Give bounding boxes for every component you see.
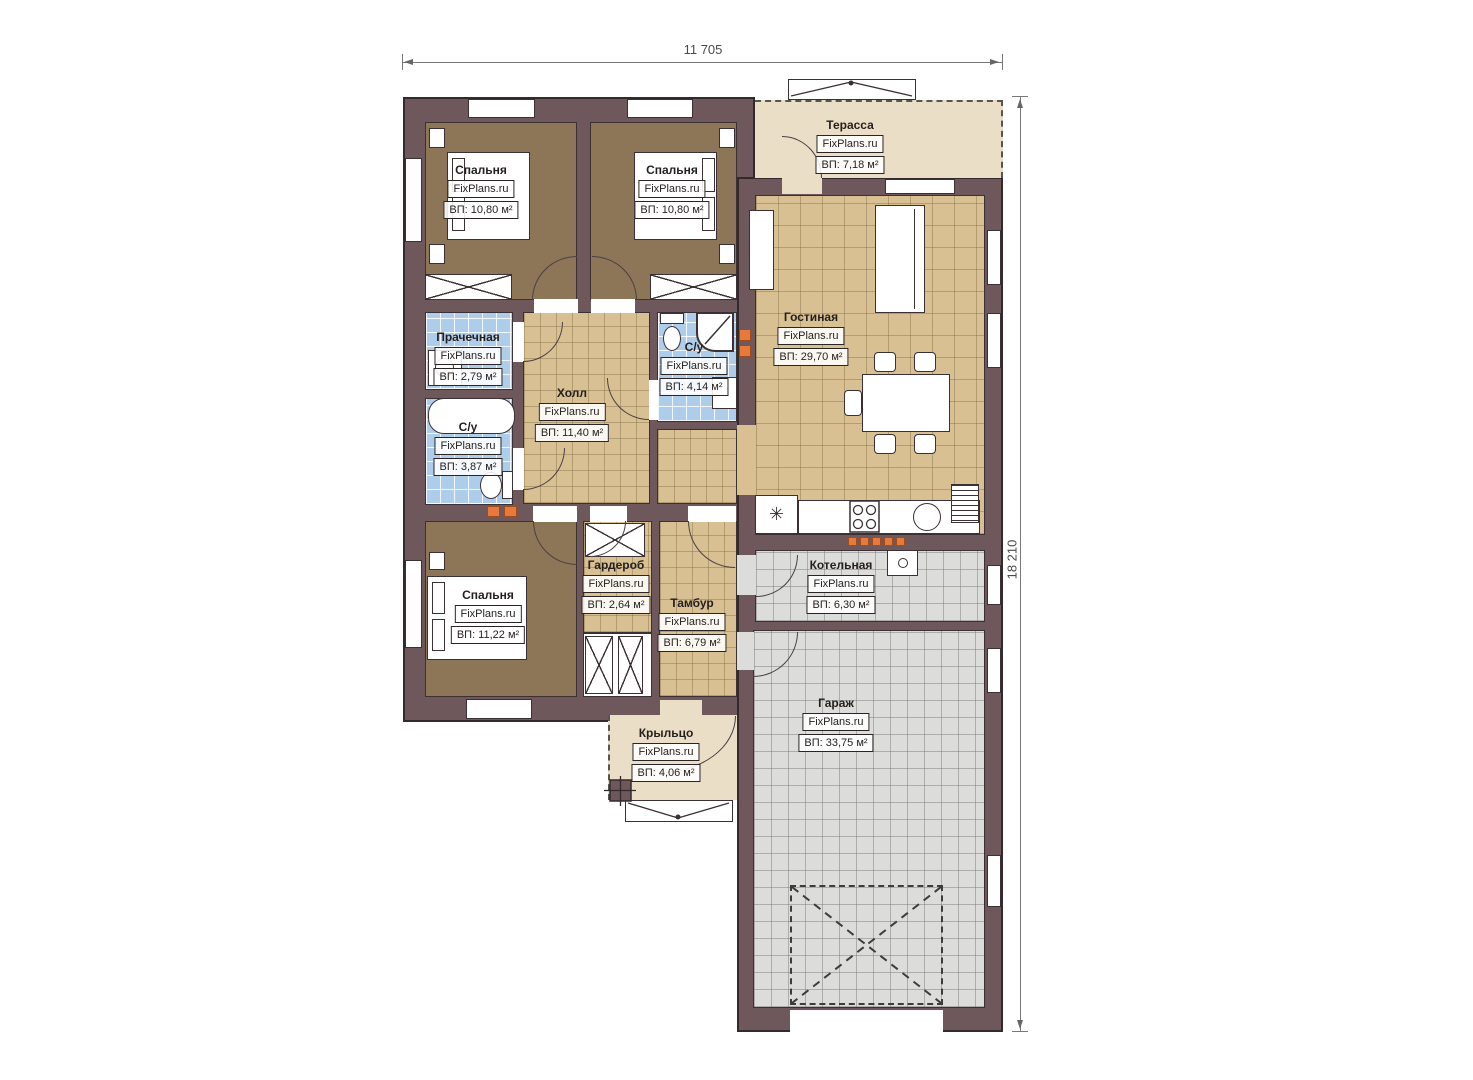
dimension-width-label: 11 705 xyxy=(663,42,743,57)
chair xyxy=(874,434,896,454)
window-living-right-2 xyxy=(987,313,1001,368)
closet xyxy=(650,274,737,300)
room-name: Гостиная xyxy=(784,310,838,324)
kitchen-sink xyxy=(913,503,941,531)
brand-watermark: FixPlans.ru xyxy=(660,357,727,375)
chair xyxy=(874,352,896,372)
window-bedroom-3-bottom xyxy=(466,699,532,719)
floor-hall-lower xyxy=(657,429,737,504)
window-garage-right-1 xyxy=(987,648,1001,693)
room-label-bathroom-1: С/у FixPlans.ru ВП: 4,14 м² xyxy=(659,340,728,396)
passage-hall-living xyxy=(737,425,756,495)
room-name: Прачечная xyxy=(436,330,500,344)
room-label-laundry: Прачечная FixPlans.ru ВП: 2,79 м² xyxy=(433,330,502,386)
room-label-porch: Крыльцо FixPlans.ru ВП: 4,06 м² xyxy=(631,726,700,782)
brand-watermark: FixPlans.ru xyxy=(658,613,725,631)
steps-lines-icon xyxy=(626,801,731,820)
garage-gate-opening xyxy=(790,1010,943,1032)
toilet xyxy=(480,472,502,499)
brand-watermark: FixPlans.ru xyxy=(538,403,605,421)
room-name: С/у xyxy=(459,420,478,434)
door-opening-bedroom-1 xyxy=(534,299,578,313)
room-name: Тамбур xyxy=(670,596,714,610)
dimension-line-right xyxy=(1020,97,1021,1032)
window-bedroom-1-top xyxy=(468,99,535,118)
nightstand xyxy=(429,244,445,264)
terrace-steps xyxy=(788,79,916,100)
room-name: Гардероб xyxy=(588,558,645,572)
window-living-right-1 xyxy=(987,230,1001,285)
room-area: ВП: 6,30 м² xyxy=(806,596,875,614)
room-label-hall: Холл FixPlans.ru ВП: 11,40 м² xyxy=(535,386,609,442)
door-opening-bedroom-2 xyxy=(591,299,635,313)
pillow xyxy=(432,619,445,651)
room-label-vestibule: Тамбур FixPlans.ru ВП: 6,79 м² xyxy=(657,596,726,652)
window-garage-right-2 xyxy=(987,855,1001,907)
window-bedroom-1-left xyxy=(405,158,422,242)
room-label-bedroom-1: Спальня FixPlans.ru ВП: 10,80 м² xyxy=(443,163,518,219)
window-boiler-right xyxy=(987,565,1001,605)
boiler-sink-bowl xyxy=(898,558,908,568)
dimension-height-label: 18 210 xyxy=(1005,530,1020,590)
brand-watermark: FixPlans.ru xyxy=(638,180,705,198)
room-name: Холл xyxy=(557,386,587,400)
room-area: ВП: 2,64 м² xyxy=(581,596,650,614)
room-area: ВП: 10,80 м² xyxy=(443,201,518,219)
tv-cabinet xyxy=(749,210,774,290)
door-opening-garage xyxy=(737,632,754,670)
room-area: ВП: 29,70 м² xyxy=(773,348,848,366)
brand-watermark: FixPlans.ru xyxy=(582,575,649,593)
room-area: ВП: 2,79 м² xyxy=(433,368,502,386)
dining-table xyxy=(862,374,950,432)
room-label-bedroom-2: Спальня FixPlans.ru ВП: 10,80 м² xyxy=(634,163,709,219)
dimension-tick xyxy=(1012,96,1028,97)
steps-lines-icon xyxy=(789,80,914,98)
brand-watermark: FixPlans.ru xyxy=(434,347,501,365)
dimension-tick xyxy=(1012,1031,1028,1032)
room-name: Терасса xyxy=(826,118,874,132)
floor-plan-canvas: ✳ xyxy=(0,0,1473,1080)
room-area: ВП: 11,40 м² xyxy=(535,424,609,442)
dimension-line-top xyxy=(403,62,1003,63)
radiator xyxy=(739,345,751,357)
room-area: ВП: 11,22 м² xyxy=(451,626,525,644)
room-label-wardrobe: Гардероб FixPlans.ru ВП: 2,64 м² xyxy=(581,558,650,614)
room-area: ВП: 4,06 м² xyxy=(631,764,700,782)
brand-watermark: FixPlans.ru xyxy=(632,743,699,761)
brand-watermark: FixPlans.ru xyxy=(816,135,883,153)
door-opening-vestibule xyxy=(688,506,736,522)
room-area: ВП: 6,79 м² xyxy=(657,634,726,652)
sofa-back-line xyxy=(914,209,916,309)
room-label-boiler-room: Котельная FixPlans.ru ВП: 6,30 м² xyxy=(806,558,875,614)
radiator xyxy=(896,537,905,546)
nightstand xyxy=(719,244,735,264)
dimension-tick xyxy=(402,54,403,70)
room-area: ВП: 3,87 м² xyxy=(433,458,502,476)
radiator xyxy=(487,506,500,517)
room-name: Котельная xyxy=(810,558,873,572)
parking-zone-cross-icon xyxy=(792,887,941,1003)
chair xyxy=(914,352,936,372)
nightstand xyxy=(719,128,735,148)
dimension-arrow-right xyxy=(990,59,999,65)
room-area: ВП: 4,14 м² xyxy=(659,378,728,396)
garage-parking-zone xyxy=(790,885,943,1005)
closet xyxy=(585,636,613,694)
radiator xyxy=(860,537,869,546)
room-label-terrace: Терасса FixPlans.ru ВП: 7,18 м² xyxy=(815,118,884,174)
snowflake-icon: ✳ xyxy=(769,504,784,525)
dimension-arrow-down xyxy=(1017,1020,1023,1029)
closet xyxy=(425,274,512,300)
window-bedroom-2-top xyxy=(627,99,693,118)
brand-watermark: FixPlans.ru xyxy=(777,327,844,345)
dimension-arrow-up xyxy=(1017,99,1023,108)
room-name: Спальня xyxy=(455,163,507,177)
room-name: Гараж xyxy=(818,696,854,710)
door-opening-porch xyxy=(660,700,702,716)
radiator xyxy=(872,537,881,546)
room-label-bedroom-3: Спальня FixPlans.ru ВП: 11,22 м² xyxy=(451,588,525,644)
room-name: Спальня xyxy=(462,588,514,602)
door-opening-bedroom-3 xyxy=(533,506,577,522)
room-name: Крыльцо xyxy=(639,726,694,740)
nightstand xyxy=(429,552,445,570)
chair xyxy=(914,434,936,454)
brand-watermark: FixPlans.ru xyxy=(447,180,514,198)
radiator xyxy=(884,537,893,546)
room-name: С/у xyxy=(685,340,704,354)
pillow xyxy=(432,582,445,614)
dimension-arrow-left xyxy=(404,59,413,65)
door-opening-bathroom-1 xyxy=(649,380,658,420)
window-living-top xyxy=(885,179,955,194)
radiator xyxy=(739,329,751,341)
window-bedroom-3-left xyxy=(405,560,422,648)
door-opening-boiler xyxy=(737,555,756,595)
radiator xyxy=(504,506,517,517)
door-opening-wardrobe xyxy=(590,506,627,522)
room-name: Спальня xyxy=(646,163,698,177)
nightstand xyxy=(429,128,445,148)
room-label-garage: Гараж FixPlans.ru ВП: 33,75 м² xyxy=(798,696,873,752)
sofa xyxy=(875,205,925,313)
room-label-bathroom-2: С/у FixPlans.ru ВП: 3,87 м² xyxy=(433,420,502,476)
fridge: ✳ xyxy=(755,495,798,534)
room-area: ВП: 33,75 м² xyxy=(798,734,873,752)
boiler-sink xyxy=(887,550,918,576)
room-area: ВП: 7,18 м² xyxy=(815,156,884,174)
porch-steps xyxy=(625,800,733,822)
brand-watermark: FixPlans.ru xyxy=(454,605,521,623)
stove xyxy=(849,500,880,533)
brand-watermark: FixPlans.ru xyxy=(802,713,869,731)
brand-watermark: FixPlans.ru xyxy=(807,575,874,593)
room-area: ВП: 10,80 м² xyxy=(634,201,709,219)
room-label-living-room: Гостиная FixPlans.ru ВП: 29,70 м² xyxy=(773,310,848,366)
chair xyxy=(844,390,862,416)
door-opening-terrace xyxy=(782,178,822,194)
dimension-tick xyxy=(1002,54,1003,70)
brand-watermark: FixPlans.ru xyxy=(434,437,501,455)
toilet-tank xyxy=(502,471,513,499)
toilet-tank xyxy=(660,313,684,324)
kitchen-tall-unit xyxy=(951,484,979,523)
radiator xyxy=(848,537,857,546)
closet xyxy=(618,636,643,694)
